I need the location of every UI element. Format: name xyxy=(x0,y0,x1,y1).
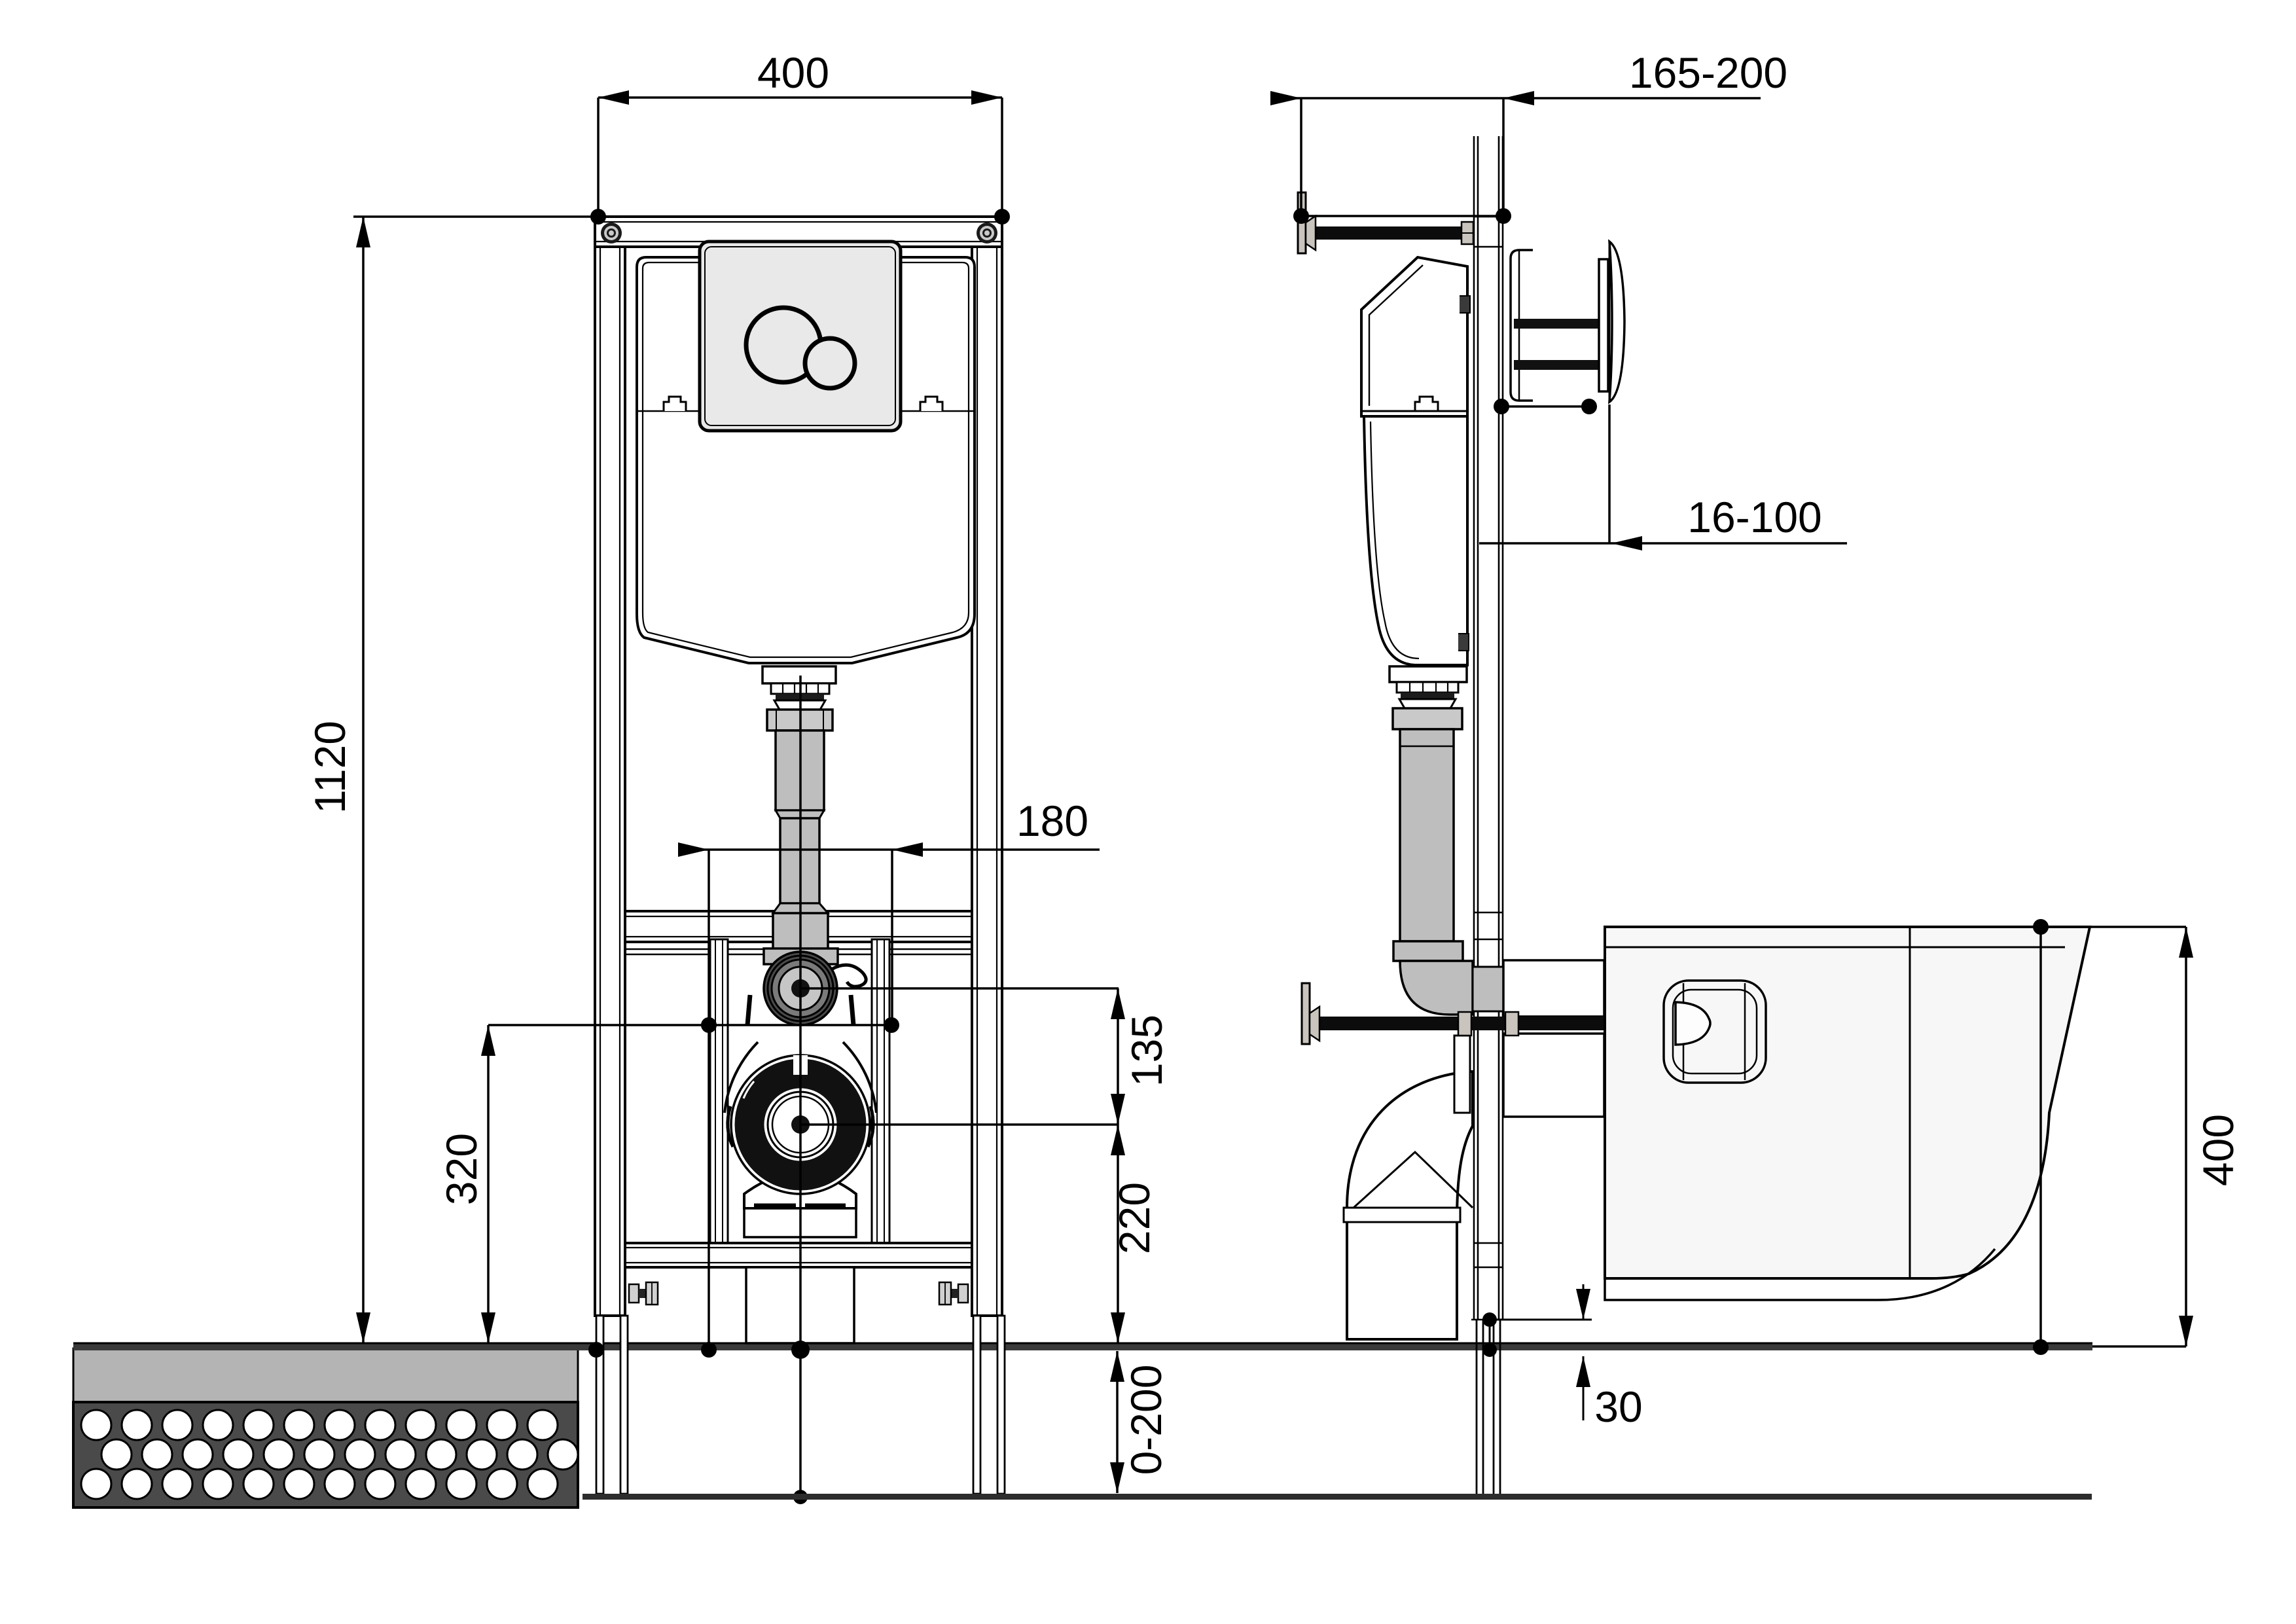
svg-text:165-200: 165-200 xyxy=(1629,48,1787,97)
svg-text:220: 220 xyxy=(1110,1182,1158,1254)
svg-text:320: 320 xyxy=(437,1133,486,1205)
svg-text:0-200: 0-200 xyxy=(1122,1365,1170,1475)
svg-text:400: 400 xyxy=(2194,1114,2242,1186)
svg-text:400: 400 xyxy=(757,48,829,97)
svg-text:16-100: 16-100 xyxy=(1687,493,1822,541)
svg-text:30: 30 xyxy=(1594,1382,1642,1431)
svg-text:1120: 1120 xyxy=(306,721,354,814)
svg-text:135: 135 xyxy=(1122,1015,1171,1087)
svg-text:180: 180 xyxy=(1016,797,1088,845)
